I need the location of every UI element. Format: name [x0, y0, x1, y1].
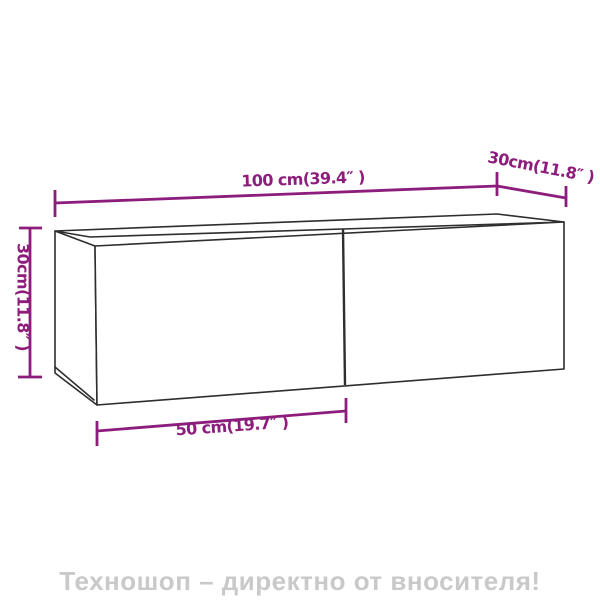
- dimension-label-height: 30cm(11.8″ ): [14, 243, 33, 351]
- watermark-text: Техношоп – директно от вносителя!: [0, 566, 600, 597]
- cabinet-left-panel: [55, 231, 97, 405]
- cabinet-drawing: [0, 0, 600, 600]
- product-dimension-diagram: 100 cm(39.4″ ) 30cm(11.8″ ) 30cm(11.8″ )…: [0, 0, 600, 600]
- dimension-depth-lines: [497, 186, 566, 207]
- cabinet-front-face: [95, 222, 564, 405]
